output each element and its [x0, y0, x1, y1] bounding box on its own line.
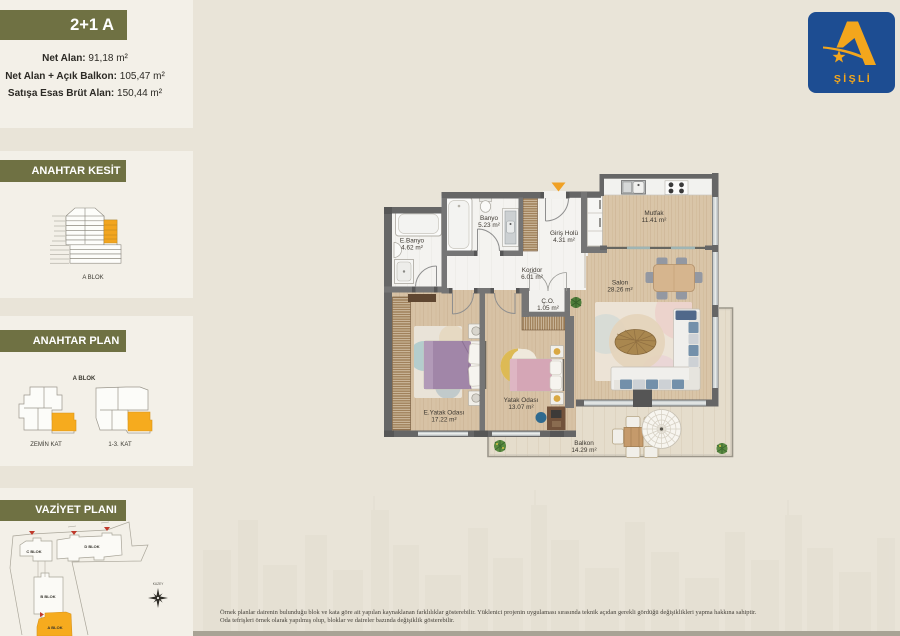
svg-text:Ç.O.: Ç.O.: [541, 298, 554, 305]
svg-text:Banyo: Banyo: [480, 215, 499, 222]
svg-text:E.Yatak Odası: E.Yatak Odası: [424, 410, 465, 417]
svg-text:11.41 m²: 11.41 m²: [642, 217, 667, 224]
svg-text:4.62 m²: 4.62 m²: [401, 245, 423, 252]
svg-text:4.31 m²: 4.31 m²: [553, 237, 575, 244]
svg-text:17.22 m²: 17.22 m²: [431, 417, 456, 424]
svg-text:E.Banyo: E.Banyo: [400, 238, 425, 245]
svg-text:Salon: Salon: [612, 280, 629, 287]
svg-text:13.07 m²: 13.07 m²: [508, 404, 533, 411]
svg-text:5.23 m²: 5.23 m²: [478, 222, 500, 229]
svg-text:Mutfak: Mutfak: [644, 210, 664, 217]
svg-text:Koridor: Koridor: [522, 267, 543, 274]
svg-text:Balkon: Balkon: [574, 440, 594, 447]
svg-text:14.29 m²: 14.29 m²: [571, 447, 596, 454]
svg-text:28.26 m²: 28.26 m²: [607, 287, 632, 294]
svg-text:Giriş Holü: Giriş Holü: [550, 230, 578, 237]
svg-text:6.01 m²: 6.01 m²: [521, 274, 543, 281]
svg-text:Yatak Odası: Yatak Odası: [504, 397, 539, 404]
svg-text:1.05 m²: 1.05 m²: [537, 305, 559, 312]
